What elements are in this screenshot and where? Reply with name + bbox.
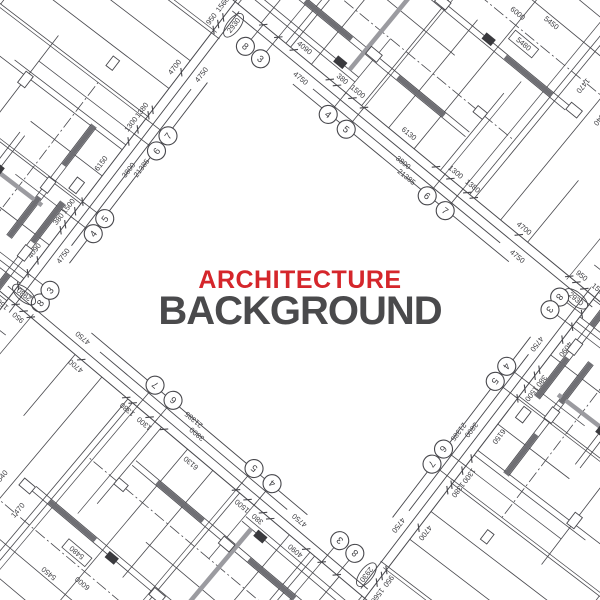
- plan-line: [474, 28, 600, 198]
- plan-line: [137, 392, 149, 407]
- plan-line: [266, 37, 278, 52]
- plan-line: [97, 427, 161, 504]
- dimension-label: 1470: [574, 76, 592, 95]
- plan-line: [146, 119, 161, 131]
- plan-line: [451, 455, 466, 467]
- filled-column-rect: [333, 55, 347, 69]
- dimension-label: 5480: [514, 35, 533, 53]
- plan-line: [236, 475, 248, 490]
- plan-line: [71, 217, 86, 229]
- plan-line: [514, 372, 529, 384]
- dimension-label: 950: [10, 310, 25, 325]
- plan-line: [334, 93, 346, 108]
- plan-line: [32, 491, 231, 600]
- dimension-label: 1560: [214, 0, 231, 14]
- plan-line: [519, 396, 600, 517]
- plan-line: [536, 0, 600, 78]
- plan-line: [28, 273, 43, 285]
- plan-line: [389, 20, 478, 128]
- plan-line: [502, 387, 517, 399]
- plan-line: [24, 355, 76, 416]
- plan-line: [587, 374, 600, 600]
- plan-line: [87, 456, 347, 600]
- plan-line: [337, 560, 349, 575]
- dimension-label: 380: [250, 512, 265, 527]
- dimension-chain-bottom-left: 4090475038015003800213851300138047004750…: [0, 260, 416, 600]
- plan-line: [0, 399, 128, 567]
- dimension-label: 5450: [542, 14, 561, 32]
- dimension-chain-top-left: 4090475038015003800213851300138047004750…: [0, 0, 266, 393]
- dimension-chain-top-right: 4090475038015003800213851300138047004750…: [184, 0, 600, 334]
- plan-line: [557, 315, 572, 327]
- dimension-label: 5450: [40, 565, 59, 583]
- filled-column-rect: [105, 551, 119, 565]
- plan-line: [0, 0, 148, 116]
- plan-line: [134, 134, 149, 146]
- plan-line: [352, 108, 364, 123]
- plan-line: [528, 180, 579, 242]
- plan-line: [0, 288, 368, 600]
- filled-column-rect: [482, 32, 496, 46]
- plan-line: [361, 0, 516, 111]
- plan-line: [39, 61, 138, 136]
- wall-segment: [504, 55, 554, 97]
- wall-segment: [396, 75, 446, 117]
- dimension-label: 1560: [590, 281, 600, 299]
- plan-line: [0, 487, 290, 600]
- plan-line: [361, 288, 591, 589]
- plan-line: [0, 137, 20, 283]
- plan-line: [251, 25, 263, 40]
- architecture-blueprint-background: 4090475038015003800213851300138047004750…: [0, 0, 600, 600]
- plan-line: [368, 0, 569, 105]
- blueprint-drawing: 4090475038015003800213851300138047004750…: [0, 0, 600, 600]
- dimension-label: 2930: [358, 565, 375, 584]
- plan-line: [9, 11, 239, 312]
- plan-line: [0, 404, 140, 600]
- dimension-label: 6000: [508, 5, 527, 23]
- dimension-label: 1840: [592, 109, 600, 128]
- column-rect: [69, 177, 85, 194]
- plan-line: [0, 0, 13, 226]
- dimension-label: 5480: [68, 544, 87, 562]
- plan-line: [15, 60, 126, 145]
- plan-line: [254, 491, 266, 506]
- plan-line: [142, 0, 217, 32]
- column-rect: [106, 56, 120, 70]
- plan-line: [81, 487, 238, 600]
- plan-line: [439, 470, 454, 482]
- plan-line: [232, 11, 592, 307]
- plan-line: [238, 0, 352, 4]
- wall-segment: [62, 124, 96, 167]
- plan-line: [452, 484, 600, 600]
- plan-line: [252, 0, 515, 140]
- plan-line: [123, 470, 213, 577]
- filled-column-rect: [253, 530, 267, 544]
- dimension-label: 1560: [369, 586, 386, 600]
- column-rect: [515, 406, 531, 423]
- plan-line: [410, 539, 537, 600]
- dimension-label: 21385: [183, 410, 205, 430]
- plan-line: [155, 407, 167, 422]
- plan-line: [362, 0, 489, 106]
- column-rect: [473, 106, 487, 120]
- plan-line: [0, 0, 122, 150]
- dimension-chain-bottom-right: 4090475038015003800213851300138047004750…: [334, 207, 600, 600]
- plan-line: [433, 174, 445, 189]
- dimension-label: 950: [574, 268, 589, 283]
- plan-line: [567, 207, 600, 280]
- plan-line: [460, 0, 600, 192]
- plan-line: [383, 568, 458, 600]
- plan-line: [470, 0, 600, 195]
- column-rect: [480, 530, 494, 544]
- plan-line: [0, 0, 237, 313]
- column-rect: [40, 177, 56, 194]
- plan-line: [8, 286, 368, 589]
- column-rect: [435, 0, 452, 10]
- dimension-label: 21385: [396, 167, 418, 187]
- wall-segment: [504, 433, 538, 476]
- wall-segment: [48, 500, 97, 542]
- column-rect: [544, 407, 560, 424]
- plan-line: [442, 82, 521, 178]
- plan-line: [0, 377, 102, 499]
- plan-line: [363, 287, 600, 600]
- wall-segment: [590, 269, 600, 328]
- dimension-label: 1840: [0, 468, 10, 487]
- plan-line: [232, 0, 600, 305]
- dimension-label: 6000: [73, 575, 92, 593]
- plan-line: [0, 314, 33, 386]
- dimension-label: 2930: [225, 16, 242, 35]
- plan-line: [474, 455, 585, 540]
- plan-line: [322, 548, 334, 563]
- column-rect: [114, 478, 128, 492]
- plan-line: [451, 189, 463, 204]
- dimension-label: 1470: [9, 501, 27, 520]
- plan-line: [501, 96, 600, 220]
- plan-line: [82, 202, 97, 214]
- wall-segment: [247, 558, 296, 600]
- plan-line: [463, 464, 562, 539]
- wall-segment: [304, 0, 354, 41]
- dimension-label: 380: [335, 71, 350, 86]
- plan-line: [0, 82, 81, 203]
- plan-line: [580, 317, 600, 463]
- plan-line: [63, 0, 190, 61]
- plan-line: [478, 450, 600, 600]
- wall-segment: [155, 480, 204, 522]
